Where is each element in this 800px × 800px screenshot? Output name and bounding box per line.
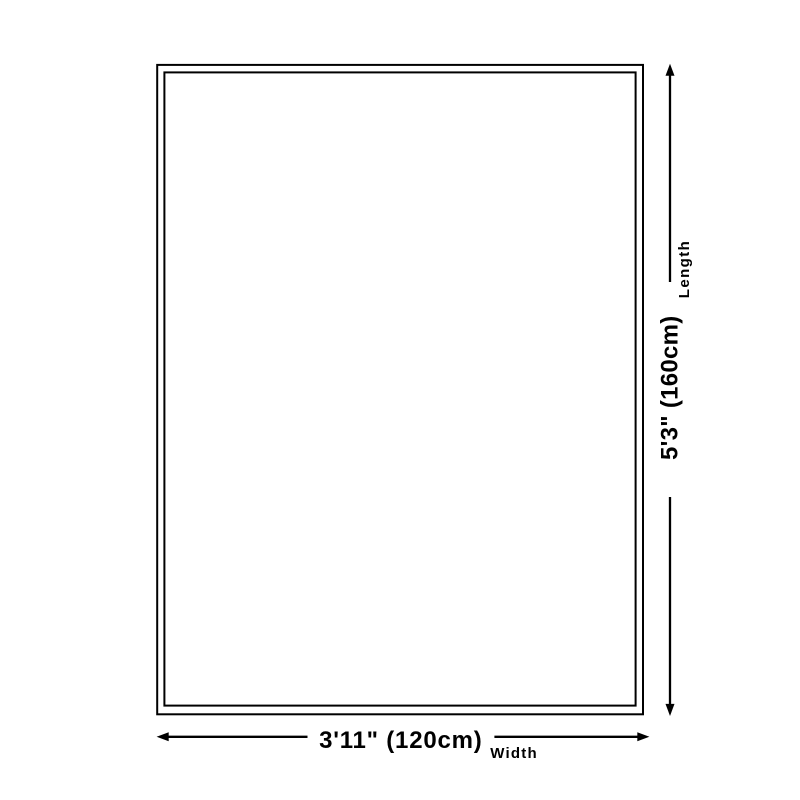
svg-text:Width: Width [490,745,538,762]
svg-text:3'11" (120cm): 3'11" (120cm) [319,727,482,754]
svg-text:Length: Length [676,240,693,298]
svg-text:5'3" (160cm): 5'3" (160cm) [656,315,683,460]
